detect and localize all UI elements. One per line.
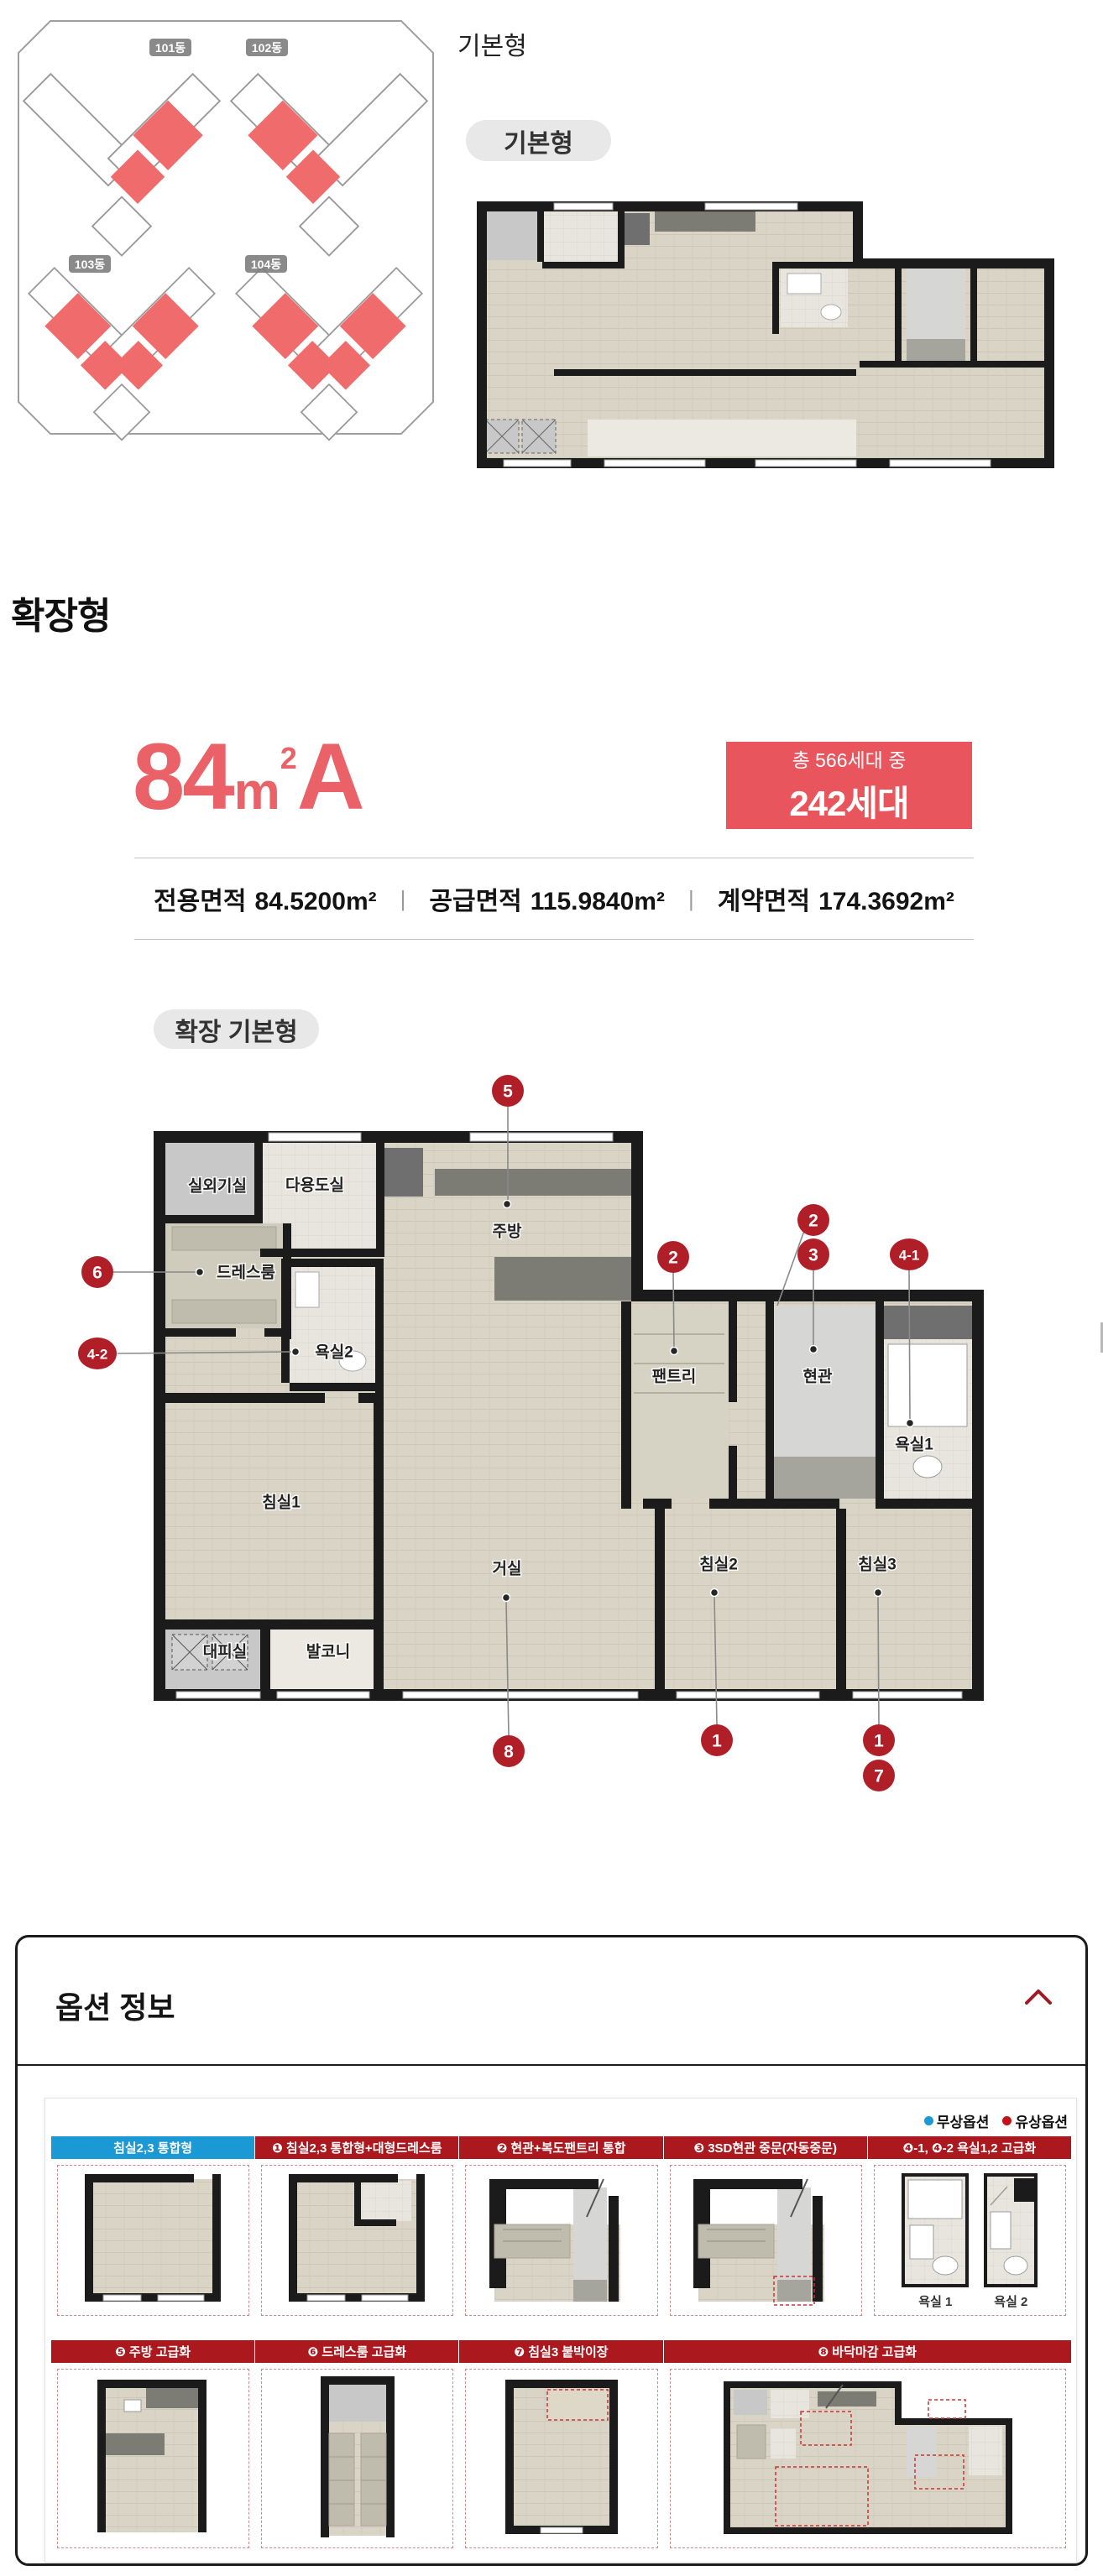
svg-text:101동: 101동 bbox=[155, 41, 186, 55]
thumb-plan-4 bbox=[690, 2171, 841, 2310]
svg-text:7: 7 bbox=[874, 1767, 884, 1786]
option-grid: 침실2,3 통합형 ❶ 침실2,3 통합형+대형드레스룸 ❷ 현관+복도팬트리 … bbox=[51, 2136, 1072, 2554]
svg-text:8: 8 bbox=[504, 1743, 514, 1762]
thumb-bath-2 bbox=[980, 2172, 1041, 2289]
option-row1-headers: 침실2,3 통합형 ❶ 침실2,3 통합형+대형드레스룸 ❷ 현관+복도팬트리 … bbox=[51, 2136, 1072, 2159]
site-plan: 101동 102동 103동 104동 bbox=[0, 0, 453, 453]
thumb-dressroom-upgrade bbox=[255, 2363, 459, 2554]
room-label: 실외기실 bbox=[188, 1177, 247, 1196]
option-info-header[interactable]: 옵션 정보 bbox=[18, 1937, 1085, 2066]
household-count: 242세대 bbox=[789, 775, 908, 827]
unit-type-letter: A bbox=[297, 730, 363, 824]
option-header-kitchen-upgrade: ❺ 주방 고급화 bbox=[51, 2340, 255, 2363]
thumb-plan-3 bbox=[486, 2171, 637, 2310]
room-label: 대피실 bbox=[203, 1643, 247, 1661]
svg-text:4-1: 4-1 bbox=[899, 1248, 920, 1264]
option-marker-3: 3 bbox=[797, 1238, 829, 1270]
svg-text:6: 6 bbox=[92, 1264, 102, 1283]
option-header-bed23-merge: 침실2,3 통합형 bbox=[51, 2136, 255, 2159]
red-dot-icon bbox=[1002, 2116, 1012, 2125]
room-label: 드레스룸 bbox=[217, 1264, 275, 1282]
room-label: 거실 bbox=[493, 1560, 522, 1578]
thumb-plan-2 bbox=[282, 2171, 433, 2310]
thumb-bath-1 bbox=[898, 2172, 972, 2289]
option-header-3sd-door: ❸ 3SD현관 중문(자동중문) bbox=[664, 2136, 868, 2159]
building-label-103: 103동 bbox=[69, 255, 111, 273]
option-marker-7: 7 bbox=[863, 1760, 895, 1791]
basic-type-heading: 기본형 bbox=[457, 25, 527, 62]
option-marker-6: 6 bbox=[81, 1256, 113, 1288]
option-marker-1a: 1 bbox=[701, 1724, 733, 1756]
svg-text:2: 2 bbox=[668, 1249, 678, 1268]
area-info-row: 전용면적 84.5200m² | 공급면적 115.9840m² | 계약면적 … bbox=[134, 858, 974, 940]
room-label: 침실1 bbox=[262, 1494, 301, 1512]
option-header-entry-pantry: ❷ 현관+복도팬트리 통합 bbox=[459, 2136, 663, 2159]
bath1-thumb: 욕실 1 bbox=[898, 2172, 972, 2310]
room-label: 다용도실 bbox=[285, 1176, 344, 1195]
room-label: 현관 bbox=[803, 1368, 833, 1386]
svg-text:5: 5 bbox=[503, 1082, 513, 1102]
option-header-bed3-closet: ❼ 침실3 붙박이장 bbox=[459, 2340, 663, 2363]
area-contract: 계약면적 174.3692m² bbox=[718, 880, 954, 917]
svg-text:3: 3 bbox=[808, 1246, 818, 1265]
divider: | bbox=[400, 886, 406, 912]
svg-text:103동: 103동 bbox=[75, 258, 105, 271]
svg-text:4-2: 4-2 bbox=[87, 1347, 108, 1363]
thumb-bath-upgrade: 욕실 1 욕실 2 bbox=[868, 2159, 1072, 2322]
basic-floorplan bbox=[470, 198, 1063, 475]
thumb-3sd-door bbox=[664, 2159, 868, 2322]
unit-size-title: 84m2A bbox=[133, 730, 363, 834]
expanded-type-heading: 확장형 bbox=[11, 586, 110, 639]
option-row2-thumbs bbox=[51, 2363, 1072, 2554]
thumb-plan-8 bbox=[717, 2375, 1019, 2542]
room-label: 욕실2 bbox=[315, 1343, 353, 1362]
thumb-plan-7 bbox=[499, 2375, 625, 2542]
area-supply: 공급면적 115.9840m² bbox=[429, 880, 665, 917]
svg-text:102동: 102동 bbox=[252, 41, 282, 55]
room-label: 침실2 bbox=[699, 1556, 738, 1574]
room-label: 주방 bbox=[493, 1223, 522, 1241]
site-plan-border bbox=[18, 21, 433, 434]
building-label-101: 101동 bbox=[149, 39, 191, 56]
thumb-entry-pantry bbox=[459, 2159, 663, 2322]
option-row1-thumbs: 욕실 1 욕실 2 bbox=[51, 2159, 1072, 2322]
room-label: 침실3 bbox=[858, 1556, 897, 1574]
option-marker-8: 8 bbox=[493, 1735, 525, 1767]
room-label: 팬트리 bbox=[652, 1368, 696, 1386]
chevron-up-icon[interactable] bbox=[1025, 1989, 1052, 2005]
thumb-plan-1 bbox=[78, 2171, 229, 2310]
unit-size-number: 84 bbox=[133, 730, 233, 824]
option-card: 무상옵션 유상옵션 침실2,3 통합형 ❶ 침실2,3 통합형+대형드레스룸 ❷… bbox=[44, 2098, 1077, 2563]
blue-dot-icon bbox=[924, 2116, 933, 2125]
building-label-104: 104동 bbox=[245, 255, 287, 273]
basic-type-pill: 기본형 bbox=[466, 120, 611, 161]
household-count-badge: 총 566세대 중 242세대 bbox=[726, 742, 972, 829]
room-label: 욕실1 bbox=[895, 1436, 933, 1454]
legend-free-option: 무상옵션 bbox=[924, 2110, 990, 2131]
thumb-kitchen-upgrade bbox=[51, 2363, 255, 2554]
option-marker-2b: 2 bbox=[797, 1204, 829, 1236]
thumb-plan-5 bbox=[91, 2375, 217, 2542]
thumb-floor-upgrade bbox=[664, 2363, 1072, 2554]
svg-text:1: 1 bbox=[712, 1732, 722, 1751]
building-label-102: 102동 bbox=[246, 39, 288, 56]
unit-size-sup: 2 bbox=[280, 743, 297, 774]
thumb-bed23-merge bbox=[51, 2159, 255, 2322]
divider: | bbox=[688, 886, 694, 912]
option-row2-headers: ❺ 주방 고급화 ❻ 드레스룸 고급화 ❼ 침실3 붙박이장 ❽ 바닥마감 고급… bbox=[51, 2340, 1072, 2363]
thumb-bed3-closet bbox=[459, 2363, 663, 2554]
unit-size-unit: m bbox=[234, 766, 280, 818]
legend-paid-option: 유상옵션 bbox=[1002, 2110, 1068, 2131]
option-header-floor-upgrade: ❽ 바닥마감 고급화 bbox=[664, 2340, 1072, 2363]
option-marker-4-1: 4-1 bbox=[890, 1238, 928, 1270]
area-exclusive: 전용면적 84.5200m² bbox=[154, 880, 377, 917]
option-marker-1b: 1 bbox=[863, 1724, 895, 1756]
option-header-bath-upgrade: ❹-1, ❹-2 욕실1,2 고급화 bbox=[868, 2136, 1072, 2159]
option-marker-2a: 2 bbox=[657, 1241, 689, 1273]
thumb-plan-6 bbox=[316, 2375, 400, 2542]
option-marker-5: 5 bbox=[492, 1075, 524, 1107]
household-total: 총 566세대 중 bbox=[792, 744, 907, 773]
svg-text:2: 2 bbox=[808, 1212, 818, 1231]
expanded-floorplan: 실외기실 다용도실 주방 드레스룸 욕실2 침실1 대피실 발코니 거실 팬트리… bbox=[67, 1066, 1024, 1804]
option-info-title: 옵션 정보 bbox=[55, 1984, 175, 2027]
room-label: 발코니 bbox=[306, 1643, 350, 1661]
option-header-bed23-merge-dress: ❶ 침실2,3 통합형+대형드레스룸 bbox=[255, 2136, 459, 2159]
thumb-bed23-merge-dress bbox=[255, 2159, 459, 2322]
expanded-basic-pill: 확장 기본형 bbox=[154, 1009, 319, 1049]
option-legend: 무상옵션 유상옵션 bbox=[924, 2110, 1068, 2131]
option-header-dressroom-upgrade: ❻ 드레스룸 고급화 bbox=[255, 2340, 459, 2363]
bath2-thumb: 욕실 2 bbox=[980, 2172, 1041, 2310]
option-info-accordion: 옵션 정보 무상옵션 유상옵션 침실2,3 통합형 ❶ 침실2,3 통합형+대형… bbox=[15, 1935, 1088, 2566]
option-marker-4-2: 4-2 bbox=[78, 1338, 117, 1369]
svg-text:1: 1 bbox=[874, 1732, 884, 1751]
svg-text:104동: 104동 bbox=[251, 258, 281, 271]
